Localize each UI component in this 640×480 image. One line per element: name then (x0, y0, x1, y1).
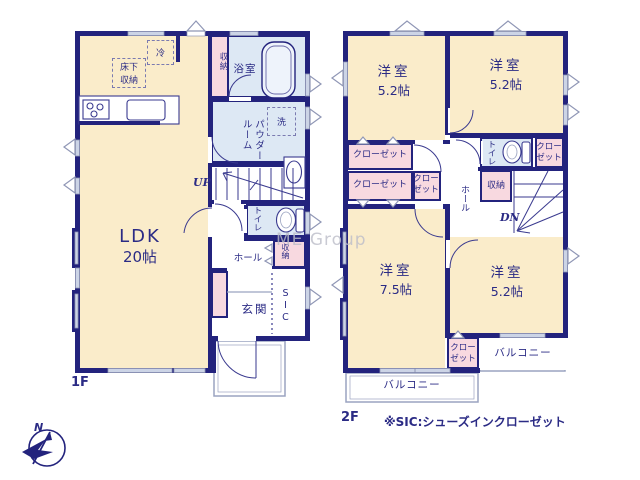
balcony-right-label: バルコニー (487, 347, 559, 360)
closet2-label: クローゼット (346, 180, 414, 191)
entrance-porch (214, 341, 285, 396)
room-d-size: 5.2帖 (476, 284, 538, 300)
toilet-fixture-f1 (277, 208, 305, 232)
powder-sink (284, 157, 305, 188)
stairs-down-label: DN (500, 211, 520, 225)
room-d-name: 洋室 (476, 265, 538, 282)
compass-north-label: N (34, 421, 43, 435)
bathtub (262, 42, 295, 98)
toilet-label-f1: トイレ (249, 206, 262, 238)
hall-label-f2: ホール (456, 185, 469, 221)
kitchen-counter (79, 96, 179, 125)
toilet-fixture-f2 (503, 141, 530, 163)
room-c-size: 7.5帖 (365, 282, 427, 298)
floor1-plan (64, 21, 321, 396)
bath-label: 浴室 (225, 63, 265, 76)
compass-icon (22, 430, 65, 466)
closet1-label: クローゼット (346, 150, 414, 161)
entrance-label: 玄関 (233, 302, 277, 316)
sic-label: SIC (277, 288, 291, 324)
floor1-label: 1F (71, 375, 89, 391)
powder-room-label: パウダールーム (236, 119, 264, 166)
floor2-label: 2F (341, 410, 359, 426)
ldk-size: 20帖 (103, 248, 177, 267)
sic-footnote: ※SIC:シューズインクローゼット (384, 415, 566, 430)
closet-mid-label: クローゼット (411, 174, 441, 196)
hall-label-f1: ホール (228, 253, 268, 265)
closet-tr-label: クローゼット (533, 142, 565, 164)
underfloor-storage-label: 床下収納 (112, 58, 146, 88)
washer-label: 洗 (267, 107, 296, 136)
room-c-name: 洋室 (365, 263, 427, 280)
balcony-bottom-label: バルコニー (376, 379, 448, 392)
storage-label-f2: 収納 (479, 181, 513, 192)
fridge-label: 冷 (147, 40, 174, 65)
floorplan-canvas: 冷 床下収納 収納 浴室 洗 パウダールーム UP トイレ ホール 収納 LDK… (0, 0, 640, 480)
room-b-name: 洋室 (475, 58, 537, 75)
watermark: ME Group (276, 230, 367, 250)
ldk-name: LDK (103, 226, 177, 249)
room-a-name: 洋室 (363, 64, 425, 81)
closet-bottom-label: クローゼット (447, 343, 479, 365)
stairs-up-label: UP (193, 176, 211, 190)
room-b-size: 5.2帖 (475, 77, 537, 93)
toilet-label-f2: トイレ (483, 140, 496, 170)
room-a-size: 5.2帖 (363, 83, 425, 99)
